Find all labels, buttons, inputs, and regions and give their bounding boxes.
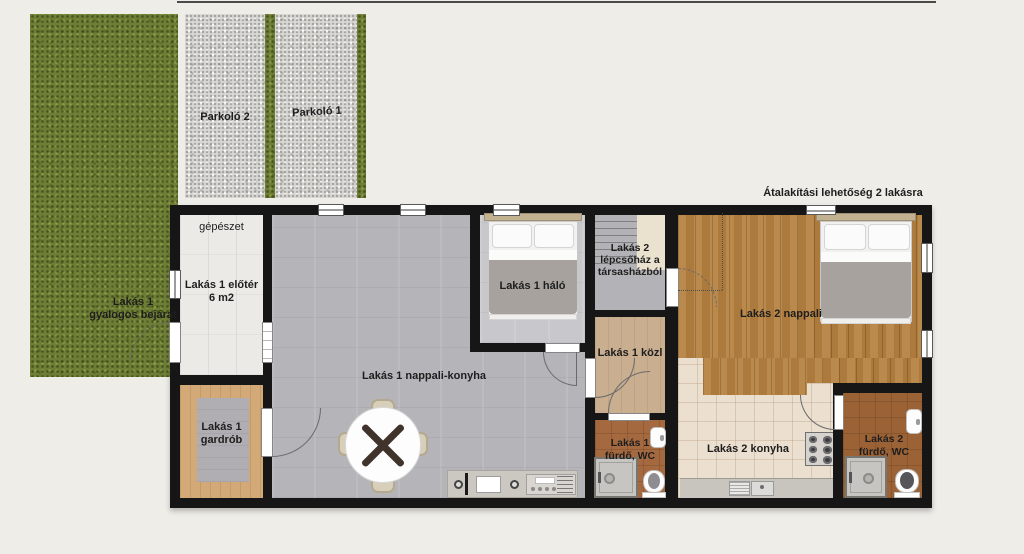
shower-drain — [863, 473, 874, 484]
parking-spot-2-label: Parkoló 2 — [185, 111, 265, 124]
room-label-bejarat: Lakás 1 gyalogos bejárat — [78, 296, 188, 322]
toilet-tank — [894, 492, 920, 498]
toilet-furdo1 — [642, 470, 666, 498]
pillow — [868, 224, 910, 250]
conversion-dotted-line-v — [722, 213, 723, 290]
window-top-1 — [318, 204, 344, 216]
burner — [809, 446, 817, 453]
shower-furdo1 — [594, 457, 638, 498]
shower-handle — [598, 472, 601, 483]
stove-konyha2 — [805, 432, 836, 466]
grass-area — [30, 14, 178, 377]
burner-dot — [545, 487, 549, 491]
sink — [476, 476, 501, 493]
window-top-2 — [400, 204, 426, 216]
toilet-furdo2 — [894, 469, 920, 498]
pillow — [492, 224, 532, 248]
knob — [510, 480, 519, 489]
nappali2-floor-tongue — [703, 383, 807, 395]
halo1-left-wall — [470, 215, 480, 352]
eloter-nappali-door — [262, 322, 273, 363]
room-label-kozl1: Lakás 1 közl — [586, 347, 674, 360]
window-right-1 — [921, 243, 933, 273]
shower-furdo2 — [845, 456, 887, 498]
room-label-gardrob1: Lakás 1 gardrób — [180, 421, 263, 447]
burner-dot — [552, 487, 556, 491]
room-label-lepcsohaz2: Lakás 2 lépcsőház a társasházból — [587, 242, 673, 278]
conversion-dotted-line-h — [678, 290, 722, 291]
stove-grill — [557, 476, 573, 493]
toilet-tank — [642, 492, 666, 498]
shower-drain — [604, 473, 615, 484]
room-label-nappali-konyha1: Lakás 1 nappali-konyha — [329, 370, 519, 383]
furdo2-top-wall — [833, 383, 932, 393]
burner — [823, 456, 832, 464]
parking-spot-2 — [185, 14, 265, 198]
grass-strip-between-parking — [265, 14, 275, 198]
pillow — [534, 224, 574, 248]
plan-title: Átalakítási lehetőség 2 lakásra — [723, 187, 963, 200]
nappali2-floor-extension — [703, 358, 922, 383]
burner-dot — [531, 487, 535, 491]
furdo2-door — [834, 395, 844, 430]
room-label-halo1: Lakás 1 háló — [480, 280, 585, 293]
room-label-konyha2: Lakás 2 konyha — [688, 443, 808, 456]
entrance-door — [169, 322, 181, 363]
grass-strip-right — [357, 14, 366, 198]
bed-halo1 — [484, 213, 582, 323]
toilet-bowl — [648, 473, 660, 489]
sink-drainer — [729, 481, 750, 496]
shower-handle — [849, 472, 852, 483]
burner-dot — [538, 487, 542, 491]
burner — [823, 436, 832, 444]
bed-foot — [489, 314, 577, 320]
faucet — [760, 485, 764, 489]
burner — [823, 446, 832, 454]
window-top-3 — [493, 204, 520, 216]
room-label-furdo1: Lakás 1 fürdő, WC — [595, 437, 665, 463]
furdo1-door — [608, 413, 650, 421]
stove — [526, 474, 576, 495]
pillow — [824, 224, 866, 250]
stove-tray — [535, 477, 555, 484]
property-boundary-line — [177, 1, 936, 3]
toilet-bowl — [900, 472, 914, 489]
room-label-eloter: Lakás 1 előtér 6 m2 — [174, 279, 269, 305]
washbasin-furdo2 — [906, 409, 922, 434]
faucet — [916, 419, 920, 425]
kitchen-counter-1 — [447, 470, 578, 498]
burner — [809, 436, 817, 443]
kitchen-counter-2 — [680, 478, 833, 498]
window-right-2 — [921, 330, 933, 358]
window-top-4 — [806, 205, 836, 215]
knob — [454, 480, 463, 489]
burner — [809, 456, 817, 463]
room-label-gepeszet: gépészet — [174, 221, 269, 234]
room-label-furdo2: Lakás 2 fürdő, WC — [845, 433, 923, 459]
counter-divider — [465, 473, 468, 495]
room-label-nappali2: Lakás 2 nappali — [716, 308, 846, 321]
